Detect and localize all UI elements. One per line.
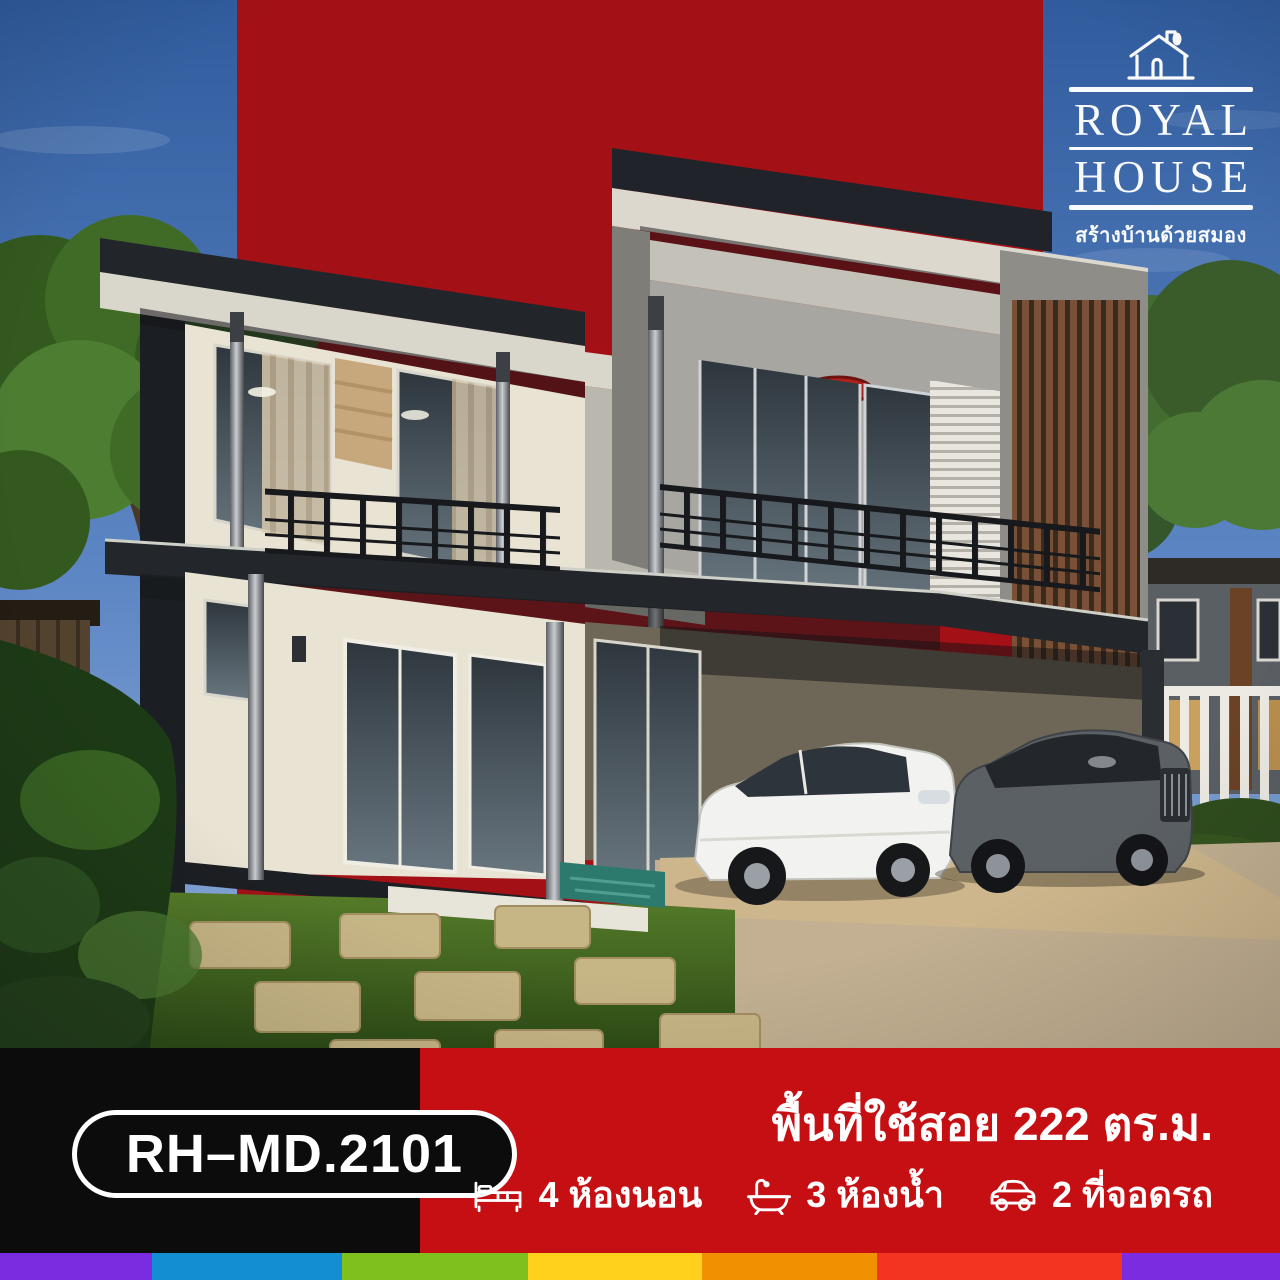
area-heading: พื้นที่ใช้สอย 222 ตร.ม.	[772, 1088, 1213, 1161]
feature-label: 4 ห้องนอน	[538, 1166, 702, 1223]
strip-segment	[152, 1253, 342, 1280]
promo-poster: ROYAL HOUSE สร้างบ้านด้วยสมอง RH–MD.2101…	[0, 0, 1280, 1280]
model-code: RH–MD.2101	[126, 1123, 463, 1185]
bottom-band: RH–MD.2101 พื้นที่ใช้สอย 222 ตร.ม. 4 ห้อ…	[0, 1048, 1280, 1253]
logo-rule-bottom	[1069, 205, 1253, 210]
strip-segment	[877, 1253, 1122, 1280]
footer-color-strip	[0, 1253, 1280, 1280]
bath-icon	[746, 1175, 792, 1215]
model-badge: RH–MD.2101	[72, 1110, 517, 1198]
logo-word-house: HOUSE	[1063, 154, 1259, 200]
car-icon	[988, 1177, 1038, 1213]
feature-bedrooms: 4 ห้องนอน	[472, 1166, 702, 1223]
logo-rule-top	[1069, 87, 1253, 92]
bed-icon	[472, 1176, 524, 1214]
strip-segment	[1122, 1253, 1280, 1280]
strip-segment	[702, 1253, 877, 1280]
logo-word-royal: ROYAL	[1063, 97, 1259, 143]
logo-rule-mid	[1069, 147, 1253, 150]
strip-segment	[0, 1253, 152, 1280]
feature-label: 2 ที่จอดรถ	[1052, 1166, 1213, 1223]
brand-logo: ROYAL HOUSE สร้างบ้านด้วยสมอง	[1063, 26, 1259, 251]
strip-segment	[528, 1253, 702, 1280]
feature-label: 3 ห้องน้ำ	[806, 1166, 944, 1223]
logo-house-icon	[1125, 26, 1197, 82]
features-row: 4 ห้องนอน 3 ห้องน้ำ	[472, 1166, 1213, 1223]
feature-parking: 2 ที่จอดรถ	[988, 1166, 1213, 1223]
strip-segment	[342, 1253, 528, 1280]
brand-tagline: สร้างบ้านด้วยสมอง	[1063, 219, 1259, 251]
feature-bathrooms: 3 ห้องน้ำ	[746, 1166, 944, 1223]
